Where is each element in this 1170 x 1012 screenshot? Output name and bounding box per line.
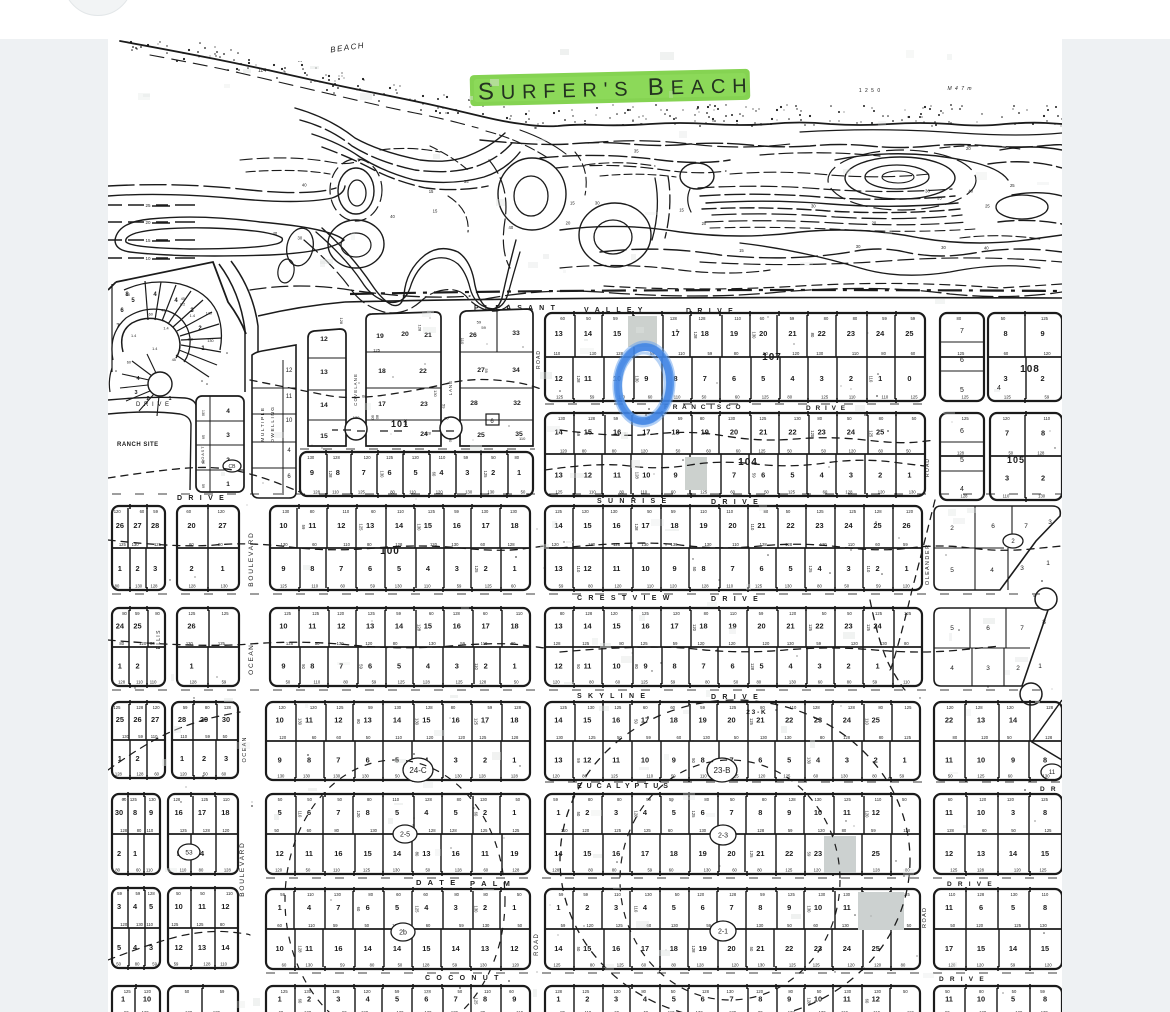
svg-text:10: 10: [977, 755, 985, 764]
svg-text:11: 11: [843, 808, 851, 817]
svg-text:50: 50: [307, 797, 312, 802]
svg-text:128: 128: [634, 524, 639, 532]
svg-text:59: 59: [136, 891, 141, 896]
svg-text:50: 50: [521, 490, 526, 495]
svg-text:59: 59: [561, 923, 566, 928]
svg-text:2: 2: [1041, 473, 1045, 482]
svg-text:50: 50: [912, 416, 917, 421]
svg-text:128: 128: [423, 680, 431, 685]
svg-text:128: 128: [115, 772, 123, 777]
svg-text:59: 59: [871, 828, 876, 833]
svg-text:128: 128: [514, 705, 522, 710]
svg-text:125: 125: [749, 851, 754, 859]
svg-text:130: 130: [395, 584, 403, 589]
svg-text:130: 130: [394, 705, 402, 710]
svg-text:21: 21: [786, 621, 794, 630]
svg-text:120: 120: [1007, 705, 1015, 710]
svg-text:128: 128: [957, 451, 965, 456]
svg-text:80: 80: [483, 892, 488, 897]
svg-text:50: 50: [278, 797, 283, 802]
svg-text:125: 125: [312, 611, 320, 616]
svg-text:4: 4: [643, 903, 648, 912]
svg-text:130: 130: [874, 989, 882, 994]
svg-text:125: 125: [957, 351, 965, 356]
svg-text:120: 120: [874, 963, 882, 968]
svg-text:25: 25: [985, 203, 990, 208]
svg-text:125: 125: [950, 868, 958, 873]
svg-text:110: 110: [732, 542, 739, 547]
svg-text:50: 50: [398, 963, 403, 968]
svg-text:120: 120: [864, 811, 869, 819]
svg-text:128: 128: [698, 316, 706, 321]
svg-text:80: 80: [343, 680, 348, 685]
svg-text:130: 130: [303, 774, 311, 779]
svg-text:C R E S T V I E W: C R E S T V I E W: [577, 595, 672, 602]
svg-text:6: 6: [701, 995, 705, 1004]
svg-text:60: 60: [560, 316, 565, 321]
svg-text:21: 21: [759, 428, 767, 437]
svg-text:80: 80: [137, 828, 142, 833]
svg-text:120: 120: [310, 705, 318, 710]
svg-text:59: 59: [816, 641, 821, 646]
svg-text:120: 120: [275, 868, 283, 873]
svg-text:15: 15: [583, 849, 591, 858]
svg-text:10: 10: [641, 564, 649, 573]
svg-text:14: 14: [393, 944, 402, 953]
svg-text:50: 50: [692, 567, 697, 572]
svg-text:10: 10: [279, 521, 287, 530]
svg-text:4: 4: [153, 292, 157, 298]
svg-text:110: 110: [726, 584, 733, 589]
svg-text:80: 80: [393, 641, 398, 646]
svg-text:26: 26: [187, 621, 195, 630]
svg-text:15: 15: [364, 849, 372, 858]
svg-text:1: 1: [118, 661, 122, 670]
svg-text:R O A D: R O A D: [925, 459, 931, 477]
svg-text:18: 18: [378, 368, 386, 375]
svg-text:50: 50: [817, 989, 822, 994]
svg-text:59: 59: [359, 664, 364, 669]
svg-text:7: 7: [336, 755, 340, 764]
svg-text:59: 59: [201, 435, 205, 439]
svg-text:80: 80: [612, 449, 617, 454]
svg-text:3: 3: [336, 995, 340, 1004]
svg-text:11: 11: [198, 902, 206, 911]
svg-text:25: 25: [876, 428, 884, 437]
svg-text:20: 20: [145, 220, 151, 225]
svg-text:2: 2: [117, 849, 121, 858]
svg-text:120: 120: [614, 584, 622, 589]
svg-text:50: 50: [671, 989, 676, 994]
svg-text:110: 110: [1003, 494, 1010, 499]
svg-text:D R: D R: [1040, 786, 1058, 793]
svg-text:7: 7: [1005, 429, 1009, 438]
svg-text:59: 59: [488, 705, 493, 710]
svg-text:120: 120: [762, 641, 770, 646]
svg-text:3: 3: [845, 755, 849, 764]
svg-text:60: 60: [911, 351, 916, 356]
svg-text:125: 125: [849, 509, 857, 514]
svg-text:8: 8: [758, 903, 762, 912]
svg-text:23-B: 23-B: [714, 766, 731, 775]
svg-text:10: 10: [145, 256, 151, 261]
svg-text:110: 110: [726, 509, 733, 514]
svg-text:18: 18: [670, 521, 678, 530]
svg-text:110: 110: [223, 797, 230, 802]
svg-text:50: 50: [676, 449, 681, 454]
svg-text:80: 80: [704, 797, 709, 802]
svg-text:120: 120: [670, 584, 678, 589]
svg-text:26: 26: [116, 521, 124, 530]
svg-text:80: 80: [810, 333, 815, 338]
svg-text:128: 128: [426, 705, 434, 710]
svg-text:110: 110: [866, 566, 871, 573]
svg-text:125: 125: [359, 524, 364, 532]
svg-text:50: 50: [200, 891, 205, 896]
svg-text:10: 10: [276, 944, 284, 953]
svg-text:60: 60: [312, 542, 317, 547]
svg-text:125: 125: [280, 584, 288, 589]
svg-text:1: 1: [512, 755, 516, 764]
svg-text:50: 50: [847, 611, 852, 616]
svg-text:59: 59: [1011, 963, 1016, 968]
svg-text:35: 35: [464, 179, 469, 184]
svg-text:130: 130: [784, 735, 792, 740]
svg-text:12: 12: [510, 944, 518, 953]
svg-text:128: 128: [118, 680, 126, 685]
svg-text:110: 110: [1043, 416, 1050, 421]
svg-text:7: 7: [703, 374, 707, 383]
svg-text:130: 130: [818, 892, 826, 897]
svg-text:125: 125: [904, 735, 912, 740]
svg-text:80: 80: [560, 611, 565, 616]
svg-text:2: 2: [585, 995, 589, 1004]
svg-text:60: 60: [648, 395, 653, 400]
svg-text:12: 12: [276, 849, 284, 858]
svg-text:59: 59: [153, 509, 158, 514]
svg-text:S U N R I S E: S U N R I S E: [597, 498, 668, 505]
svg-text:130: 130: [728, 416, 736, 421]
svg-text:17: 17: [482, 621, 490, 630]
svg-text:1: 1: [189, 661, 193, 670]
svg-text:128: 128: [813, 705, 821, 710]
svg-text:120: 120: [673, 611, 681, 616]
svg-text:60: 60: [813, 923, 818, 928]
svg-text:110: 110: [343, 542, 350, 547]
svg-text:125: 125: [180, 828, 188, 833]
svg-text:9: 9: [1040, 329, 1044, 338]
svg-text:1: 1: [556, 995, 560, 1004]
svg-text:50: 50: [786, 509, 791, 514]
svg-text:80: 80: [457, 797, 462, 802]
svg-text:130: 130: [1040, 923, 1048, 928]
svg-text:120: 120: [114, 509, 122, 514]
svg-text:110: 110: [852, 351, 859, 356]
svg-text:130: 130: [558, 416, 566, 421]
svg-text:59: 59: [459, 923, 464, 928]
svg-text:120: 120: [582, 509, 590, 514]
svg-text:128: 128: [429, 828, 437, 833]
svg-text:8: 8: [1043, 903, 1047, 912]
svg-text:50: 50: [395, 774, 400, 779]
svg-text:125: 125: [222, 611, 230, 616]
svg-text:2-3: 2-3: [718, 833, 728, 840]
svg-text:15: 15: [679, 208, 684, 213]
svg-text:9: 9: [787, 903, 791, 912]
svg-text:MULTIPLE: MULTIPLE: [260, 406, 266, 441]
svg-text:130: 130: [481, 509, 489, 514]
svg-text:125: 125: [582, 989, 590, 994]
svg-text:11: 11: [305, 715, 313, 724]
svg-text:9: 9: [149, 808, 153, 817]
svg-text:10: 10: [286, 418, 293, 424]
svg-text:24: 24: [873, 621, 882, 630]
svg-text:25: 25: [133, 621, 141, 630]
svg-text:59: 59: [900, 774, 905, 779]
svg-text:53: 53: [185, 849, 193, 856]
svg-text:13: 13: [977, 715, 985, 724]
svg-text:4: 4: [950, 665, 954, 672]
svg-text:60: 60: [1004, 351, 1009, 356]
svg-text:25: 25: [872, 715, 880, 724]
svg-text:120: 120: [586, 923, 594, 928]
svg-text:110: 110: [519, 436, 526, 441]
svg-text:15: 15: [320, 433, 328, 440]
svg-text:120: 120: [697, 892, 705, 897]
svg-text:3: 3: [614, 903, 618, 912]
svg-text:120: 120: [818, 828, 826, 833]
svg-text:120: 120: [1007, 797, 1015, 802]
svg-text:4: 4: [366, 995, 371, 1004]
svg-text:80: 80: [878, 705, 883, 710]
svg-text:128: 128: [875, 509, 883, 514]
svg-text:130: 130: [307, 455, 315, 460]
svg-text:125: 125: [582, 641, 590, 646]
svg-text:15: 15: [977, 944, 985, 953]
svg-text:13: 13: [366, 621, 374, 630]
svg-text:110: 110: [395, 735, 402, 740]
svg-text:130: 130: [473, 906, 478, 914]
svg-text:R O A D: R O A D: [534, 934, 540, 956]
svg-text:50: 50: [576, 812, 581, 817]
svg-text:40: 40: [509, 225, 514, 230]
svg-text:128: 128: [511, 735, 519, 740]
svg-text:60: 60: [431, 472, 436, 477]
svg-text:125: 125: [904, 705, 912, 710]
svg-text:80: 80: [788, 989, 793, 994]
svg-text:34: 34: [512, 367, 520, 374]
svg-text:80: 80: [205, 705, 210, 710]
svg-text:11: 11: [843, 995, 851, 1004]
svg-text:60: 60: [483, 868, 488, 873]
svg-text:8: 8: [310, 661, 314, 670]
svg-text:14: 14: [1009, 715, 1018, 724]
svg-text:125: 125: [373, 347, 380, 352]
svg-text:2: 2: [878, 470, 882, 479]
svg-text:125: 125: [1045, 828, 1053, 833]
svg-text:125: 125: [428, 509, 436, 514]
svg-text:40: 40: [984, 246, 989, 251]
svg-text:130: 130: [816, 351, 824, 356]
svg-text:4: 4: [426, 661, 431, 670]
svg-text:9: 9: [643, 661, 647, 670]
svg-text:128: 128: [332, 989, 340, 994]
svg-text:59: 59: [559, 892, 564, 897]
svg-text:5: 5: [395, 995, 399, 1004]
svg-text:D R I V E: D R I V E: [136, 402, 170, 408]
svg-text:O L E A N D E R: O L E A N D E R: [925, 545, 931, 585]
svg-text:6: 6: [960, 428, 964, 435]
svg-text:59: 59: [372, 680, 377, 685]
svg-text:9: 9: [1011, 755, 1015, 764]
svg-text:8: 8: [366, 808, 370, 817]
svg-text:60: 60: [760, 316, 765, 321]
svg-text:7: 7: [1020, 625, 1024, 632]
svg-text:5: 5: [960, 387, 964, 394]
svg-text:60: 60: [429, 611, 434, 616]
svg-text:50: 50: [366, 735, 371, 740]
svg-text:6: 6: [732, 374, 736, 383]
svg-text:120: 120: [364, 989, 372, 994]
svg-text:6: 6: [287, 474, 291, 480]
svg-text:125: 125: [284, 611, 292, 616]
svg-text:11: 11: [945, 755, 953, 764]
svg-text:125: 125: [616, 923, 624, 928]
svg-text:2: 2: [491, 468, 495, 477]
svg-text:18: 18: [670, 944, 678, 953]
svg-text:60: 60: [736, 449, 741, 454]
svg-text:21: 21: [757, 521, 765, 530]
svg-text:7: 7: [362, 468, 366, 477]
svg-text:130: 130: [758, 963, 766, 968]
svg-text:45: 45: [172, 358, 176, 362]
svg-text:...: ...: [297, 58, 302, 64]
svg-text:110: 110: [634, 906, 639, 913]
svg-text:F R A N C I S C O: F R A N C I S C O: [664, 404, 742, 411]
svg-text:59: 59: [910, 316, 915, 321]
svg-text:120: 120: [582, 828, 590, 833]
svg-text:30: 30: [925, 188, 930, 193]
svg-text:5: 5: [790, 470, 794, 479]
svg-text:125: 125: [555, 509, 563, 514]
svg-text:5: 5: [413, 468, 417, 477]
svg-text:125: 125: [479, 735, 487, 740]
svg-text:128: 128: [453, 611, 461, 616]
svg-text:35: 35: [937, 196, 942, 201]
svg-text:80: 80: [356, 719, 361, 724]
svg-text:80: 80: [612, 868, 617, 873]
svg-text:130: 130: [380, 471, 385, 479]
svg-text:22: 22: [815, 621, 823, 630]
svg-text:19: 19: [699, 944, 707, 953]
svg-text:130: 130: [610, 509, 618, 514]
svg-text:7: 7: [454, 995, 458, 1004]
svg-text:128: 128: [512, 868, 520, 873]
svg-text:110: 110: [875, 797, 882, 802]
svg-text:120: 120: [851, 641, 859, 646]
svg-text:60: 60: [340, 584, 345, 589]
svg-text:15: 15: [739, 248, 744, 253]
svg-text:130: 130: [752, 332, 757, 340]
svg-text:50: 50: [517, 892, 522, 897]
svg-text:80: 80: [415, 852, 420, 857]
svg-text:14: 14: [395, 521, 404, 530]
svg-text:80: 80: [704, 611, 709, 616]
svg-text:120: 120: [426, 735, 434, 740]
svg-text:12: 12: [221, 902, 229, 911]
svg-text:4: 4: [287, 448, 291, 454]
svg-text:8: 8: [701, 755, 705, 764]
svg-text:14: 14: [554, 849, 563, 858]
svg-text:5: 5: [454, 808, 458, 817]
svg-text:130: 130: [415, 718, 420, 726]
svg-text:130: 130: [842, 923, 850, 928]
svg-text:60: 60: [670, 705, 675, 710]
svg-text:22: 22: [788, 428, 796, 437]
svg-text:130: 130: [703, 735, 711, 740]
svg-text:40: 40: [273, 231, 278, 236]
svg-text:8: 8: [758, 808, 762, 817]
svg-text:128: 128: [1045, 735, 1053, 740]
svg-text:15: 15: [424, 621, 432, 630]
svg-text:50: 50: [1007, 735, 1012, 740]
svg-text:80: 80: [617, 797, 622, 802]
svg-text:13: 13: [554, 564, 562, 573]
svg-text:10: 10: [276, 715, 284, 724]
svg-text:107: 107: [762, 352, 782, 363]
svg-text:125: 125: [363, 868, 371, 873]
svg-text:120: 120: [364, 455, 372, 460]
svg-text:130: 130: [282, 509, 290, 514]
svg-text:12: 12: [554, 661, 562, 670]
svg-text:3: 3: [226, 432, 230, 439]
svg-text:80: 80: [847, 680, 852, 685]
svg-text:30: 30: [115, 808, 123, 817]
svg-text:1: 1: [904, 564, 908, 573]
svg-text:11: 11: [612, 755, 620, 764]
svg-text:60: 60: [483, 611, 488, 616]
svg-text:50: 50: [787, 449, 792, 454]
svg-text:2: 2: [484, 564, 488, 573]
svg-text:D R I V E: D R I V E: [939, 976, 986, 983]
svg-text:128: 128: [511, 774, 519, 779]
svg-text:3: 3: [153, 564, 157, 573]
svg-text:2: 2: [585, 903, 589, 912]
svg-text:3: 3: [134, 390, 137, 396]
svg-text:120: 120: [353, 415, 360, 420]
svg-text:110: 110: [730, 611, 737, 616]
svg-text:13: 13: [422, 849, 430, 858]
svg-text:4: 4: [990, 567, 994, 574]
svg-text:2: 2: [135, 661, 139, 670]
svg-text:1: 1: [907, 470, 911, 479]
svg-text:130: 130: [699, 828, 707, 833]
svg-text:14: 14: [320, 402, 328, 409]
svg-text:5: 5: [759, 661, 763, 670]
svg-text:2: 2: [135, 564, 139, 573]
svg-text:60: 60: [140, 509, 145, 514]
svg-text:128: 128: [702, 989, 710, 994]
svg-text:128: 128: [339, 317, 344, 324]
svg-text:C O V E L A N E: C O V E L A N E: [353, 374, 358, 406]
svg-text:59: 59: [368, 705, 373, 710]
svg-text:6: 6: [991, 523, 995, 530]
svg-text:125: 125: [281, 989, 289, 994]
svg-text:18: 18: [221, 808, 229, 817]
svg-text:12: 12: [872, 995, 880, 1004]
svg-text:15: 15: [422, 715, 430, 724]
svg-text:BEACH: BEACH: [330, 41, 366, 55]
